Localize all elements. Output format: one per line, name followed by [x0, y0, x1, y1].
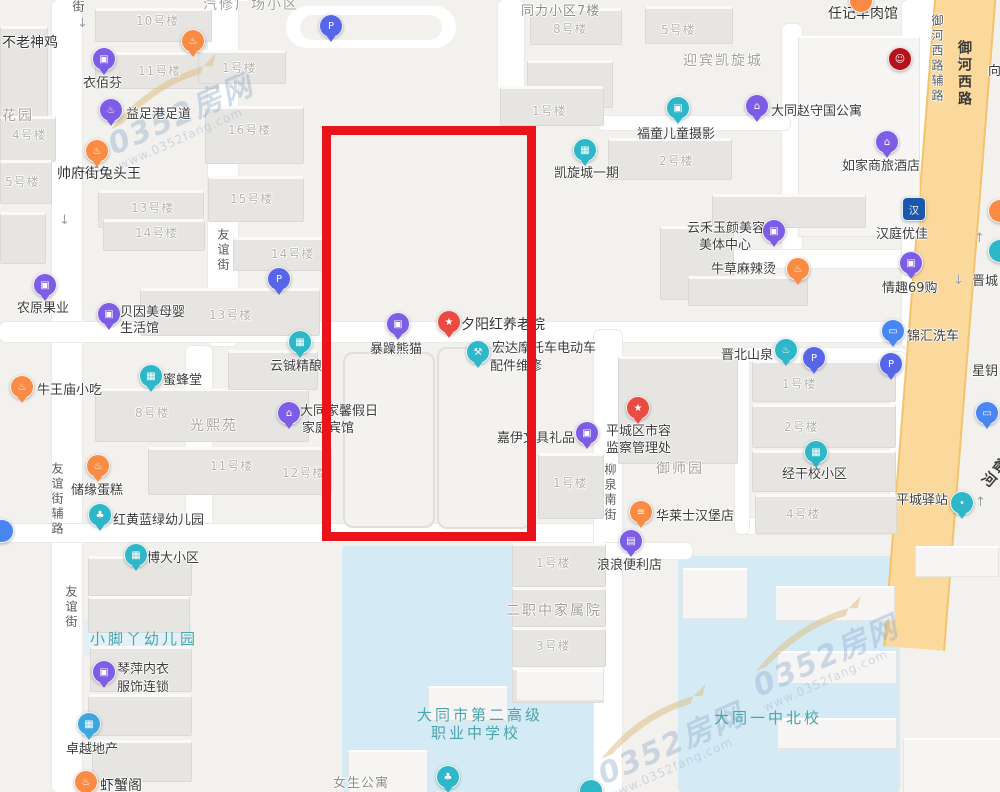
- poi-label[interactable]: 美体中心: [699, 234, 751, 253]
- pin-edge-orange[interactable]: [988, 199, 1000, 223]
- street-label: 御河西路辅路: [929, 14, 946, 104]
- pin-yibaifen-shop[interactable]: ▣: [92, 47, 116, 71]
- area-label: 汽修广场小区: [203, 0, 299, 14]
- building-label: 11号楼: [138, 62, 181, 79]
- poi-label[interactable]: 生活馆: [120, 317, 159, 336]
- poi-label[interactable]: 牛王庙小吃: [37, 379, 102, 398]
- pin-jingganxiao-community[interactable]: ▦: [804, 440, 828, 464]
- street-label: 柳泉南街: [602, 463, 619, 523]
- area-label: 星钥: [972, 360, 998, 379]
- building-label: 4号楼: [786, 505, 821, 522]
- pin-parking-3[interactable]: P: [802, 346, 826, 370]
- street-label: 御河: [974, 454, 1000, 493]
- pin-parking-4[interactable]: P: [879, 352, 903, 376]
- street-label: 友谊街: [63, 585, 80, 630]
- poi-label[interactable]: 红黄蓝绿幼儿园: [113, 509, 204, 528]
- building-label: 1号楼: [532, 102, 567, 119]
- building: [752, 404, 896, 448]
- street-label: 御河西路: [954, 40, 974, 108]
- building-label: 14号楼: [271, 245, 314, 262]
- pin-jiaxin-hotel[interactable]: ⌂: [277, 401, 301, 425]
- building-label: 10号楼: [136, 12, 179, 29]
- annotation-rect: [322, 126, 536, 541]
- pin-jinbei-water[interactable]: ♨: [774, 338, 798, 362]
- building-label: 1号楼: [222, 59, 257, 76]
- pin-qingqu-shop[interactable]: ▣: [899, 251, 923, 275]
- pin-futong-photography[interactable]: ▣: [666, 96, 690, 120]
- poi-label[interactable]: 益足港足道: [126, 103, 191, 122]
- poi-label[interactable]: 晋北山泉: [721, 344, 773, 363]
- poi-label[interactable]: 如家商旅酒店: [842, 155, 920, 174]
- pin-jiaoxuelou-school[interactable]: ♣: [436, 765, 460, 789]
- road-direction-arrow: ↓: [59, 213, 70, 228]
- pin-zhuoyue-realestate[interactable]: ▦: [77, 712, 101, 736]
- pin-honghuanglan-kindergarten[interactable]: ♣: [88, 503, 112, 527]
- pin-yuncheng-brewery[interactable]: ▦: [288, 330, 312, 354]
- pin-kfc[interactable]: ☺: [888, 47, 912, 71]
- pin-mifengtang[interactable]: ▦: [139, 364, 163, 388]
- street-label: 友谊街: [215, 228, 232, 273]
- building-label: 13号楼: [209, 306, 252, 323]
- map-canvas[interactable]: 0352房网www.0352fang.com0352房网www.0352fang…: [0, 0, 1000, 792]
- building: [0, 212, 46, 264]
- poi-label[interactable]: 琴萍内衣: [117, 658, 169, 677]
- building: [752, 360, 896, 402]
- area-label: 御师园: [656, 458, 704, 478]
- pin-pingchengqu-office[interactable]: ★: [626, 396, 650, 420]
- building: [777, 651, 897, 684]
- pin-niuwangmiao-snacks[interactable]: ♨: [10, 375, 34, 399]
- building-label: 16号楼: [228, 121, 271, 138]
- building-label: 8号楼: [135, 404, 170, 421]
- building: [903, 738, 1000, 792]
- pin-kaixuancheng-community[interactable]: ▦: [573, 138, 597, 162]
- street-label: 街: [70, 0, 87, 15]
- pin-boda-community[interactable]: ▦: [124, 543, 148, 567]
- road-direction-arrow: ↓: [953, 273, 964, 288]
- building-label: 5号楼: [661, 21, 696, 38]
- pin-shuaifujie-food[interactable]: ♨: [85, 139, 109, 163]
- poi-label[interactable]: 平城驿站: [896, 489, 948, 508]
- poi-label[interactable]: 锦汇洗车: [907, 325, 959, 344]
- pin-bus-stop[interactable]: ▭: [975, 401, 999, 425]
- building-label: 3号楼: [536, 637, 571, 654]
- poi-label[interactable]: 监察管理处: [606, 437, 671, 456]
- area-label: 晋城: [972, 270, 998, 289]
- pin-zhaoshouguo-apartment[interactable]: ⌂: [745, 94, 769, 118]
- pin-pingcheng-station[interactable]: •: [950, 491, 974, 515]
- poi-label[interactable]: 蜜蜂堂: [163, 369, 202, 388]
- pin-niucao-malatang[interactable]: ♨: [786, 257, 810, 281]
- area-label: 二职中家属院: [506, 600, 602, 620]
- building-label: 5号楼: [5, 173, 40, 190]
- building: [88, 694, 192, 736]
- building-label: 13号楼: [131, 199, 174, 216]
- building: [915, 546, 999, 577]
- building-label: 15号楼: [230, 190, 273, 207]
- pin-hualaishi-burger[interactable]: ≡: [629, 500, 653, 524]
- building-label: 1号楼: [782, 375, 817, 392]
- building-label: 12号楼: [282, 464, 325, 481]
- area-label: 向: [988, 60, 1000, 79]
- building-label: 2号楼: [784, 418, 819, 435]
- area-label: 迎宾凯旋城: [683, 50, 763, 70]
- poi-label[interactable]: 大同赵守国公寓: [771, 100, 862, 119]
- pin-rujia-hotel[interactable]: ⌂: [875, 130, 899, 154]
- pin-qinping-clothes[interactable]: ▣: [92, 660, 116, 684]
- pin-yizugang-footspa[interactable]: ♨: [99, 98, 123, 122]
- pin-nongyuan-fruit[interactable]: ▣: [33, 273, 57, 297]
- pin-jinhui-carwash[interactable]: ▭: [881, 319, 905, 343]
- building-label: 1号楼: [536, 554, 571, 571]
- pin-hanting-logo[interactable]: 汉: [902, 197, 926, 221]
- poi-label[interactable]: 不老神鸡: [2, 32, 58, 52]
- poi-label[interactable]: 博大小区: [147, 547, 199, 566]
- building: [775, 586, 895, 621]
- building-label: 4号楼: [12, 126, 47, 143]
- road-direction-arrow: ↓: [77, 16, 88, 31]
- pin-bulaoshengji-food[interactable]: ♨: [181, 29, 205, 53]
- school-label: 小脚丫幼儿园: [90, 628, 198, 649]
- building: [682, 568, 748, 619]
- poi-label[interactable]: 服饰连锁: [117, 676, 169, 695]
- poi-label[interactable]: 华莱士汉堡店: [656, 505, 734, 524]
- area-label: 女生公寓: [333, 772, 389, 791]
- building: [688, 276, 808, 306]
- poi-label[interactable]: 牛草麻辣烫: [711, 258, 776, 277]
- poi-label[interactable]: 福童儿童摄影: [637, 123, 715, 142]
- pin-langlang-store[interactable]: ▤: [619, 529, 643, 553]
- pin-beiyinmei-babystore[interactable]: ▣: [97, 302, 121, 326]
- school-label: 职业中学校: [431, 722, 521, 743]
- area-label: 花园: [2, 105, 34, 125]
- road-direction-arrow: ↑: [975, 495, 986, 510]
- pin-parking-2[interactable]: P: [267, 267, 291, 291]
- poi-label[interactable]: 虾蟹阁: [100, 775, 142, 792]
- building: [516, 670, 604, 701]
- pin-chuyuan-cake[interactable]: ♨: [86, 454, 110, 478]
- pin-jiayi-stationery[interactable]: ▣: [575, 421, 599, 445]
- pin-yunhe-beauty[interactable]: ▣: [762, 219, 786, 243]
- building-label: 8号楼: [553, 20, 588, 37]
- road-direction-arrow: ↑: [974, 231, 985, 246]
- building-label: 14号楼: [135, 224, 178, 241]
- pin-xiaxiege-food[interactable]: ♨: [74, 770, 98, 792]
- poi-label[interactable]: 卓越地产: [66, 738, 118, 757]
- street-label: 友谊街辅路: [49, 462, 66, 537]
- building-label: 2号楼: [659, 152, 694, 169]
- building-label: 1号楼: [553, 474, 588, 491]
- pin-edge-teal[interactable]: [988, 239, 1000, 263]
- school-label: 大同一中北校: [714, 707, 822, 728]
- building: [755, 494, 897, 534]
- area-label: 光熙苑: [190, 415, 238, 435]
- pin-parking-1[interactable]: P: [319, 14, 343, 38]
- poi-label[interactable]: 汉庭优佳: [876, 223, 928, 242]
- building-label: 11号楼: [210, 457, 253, 474]
- area-label: 同力小区7楼: [521, 0, 600, 19]
- poi-label[interactable]: 情趣69购: [882, 277, 938, 296]
